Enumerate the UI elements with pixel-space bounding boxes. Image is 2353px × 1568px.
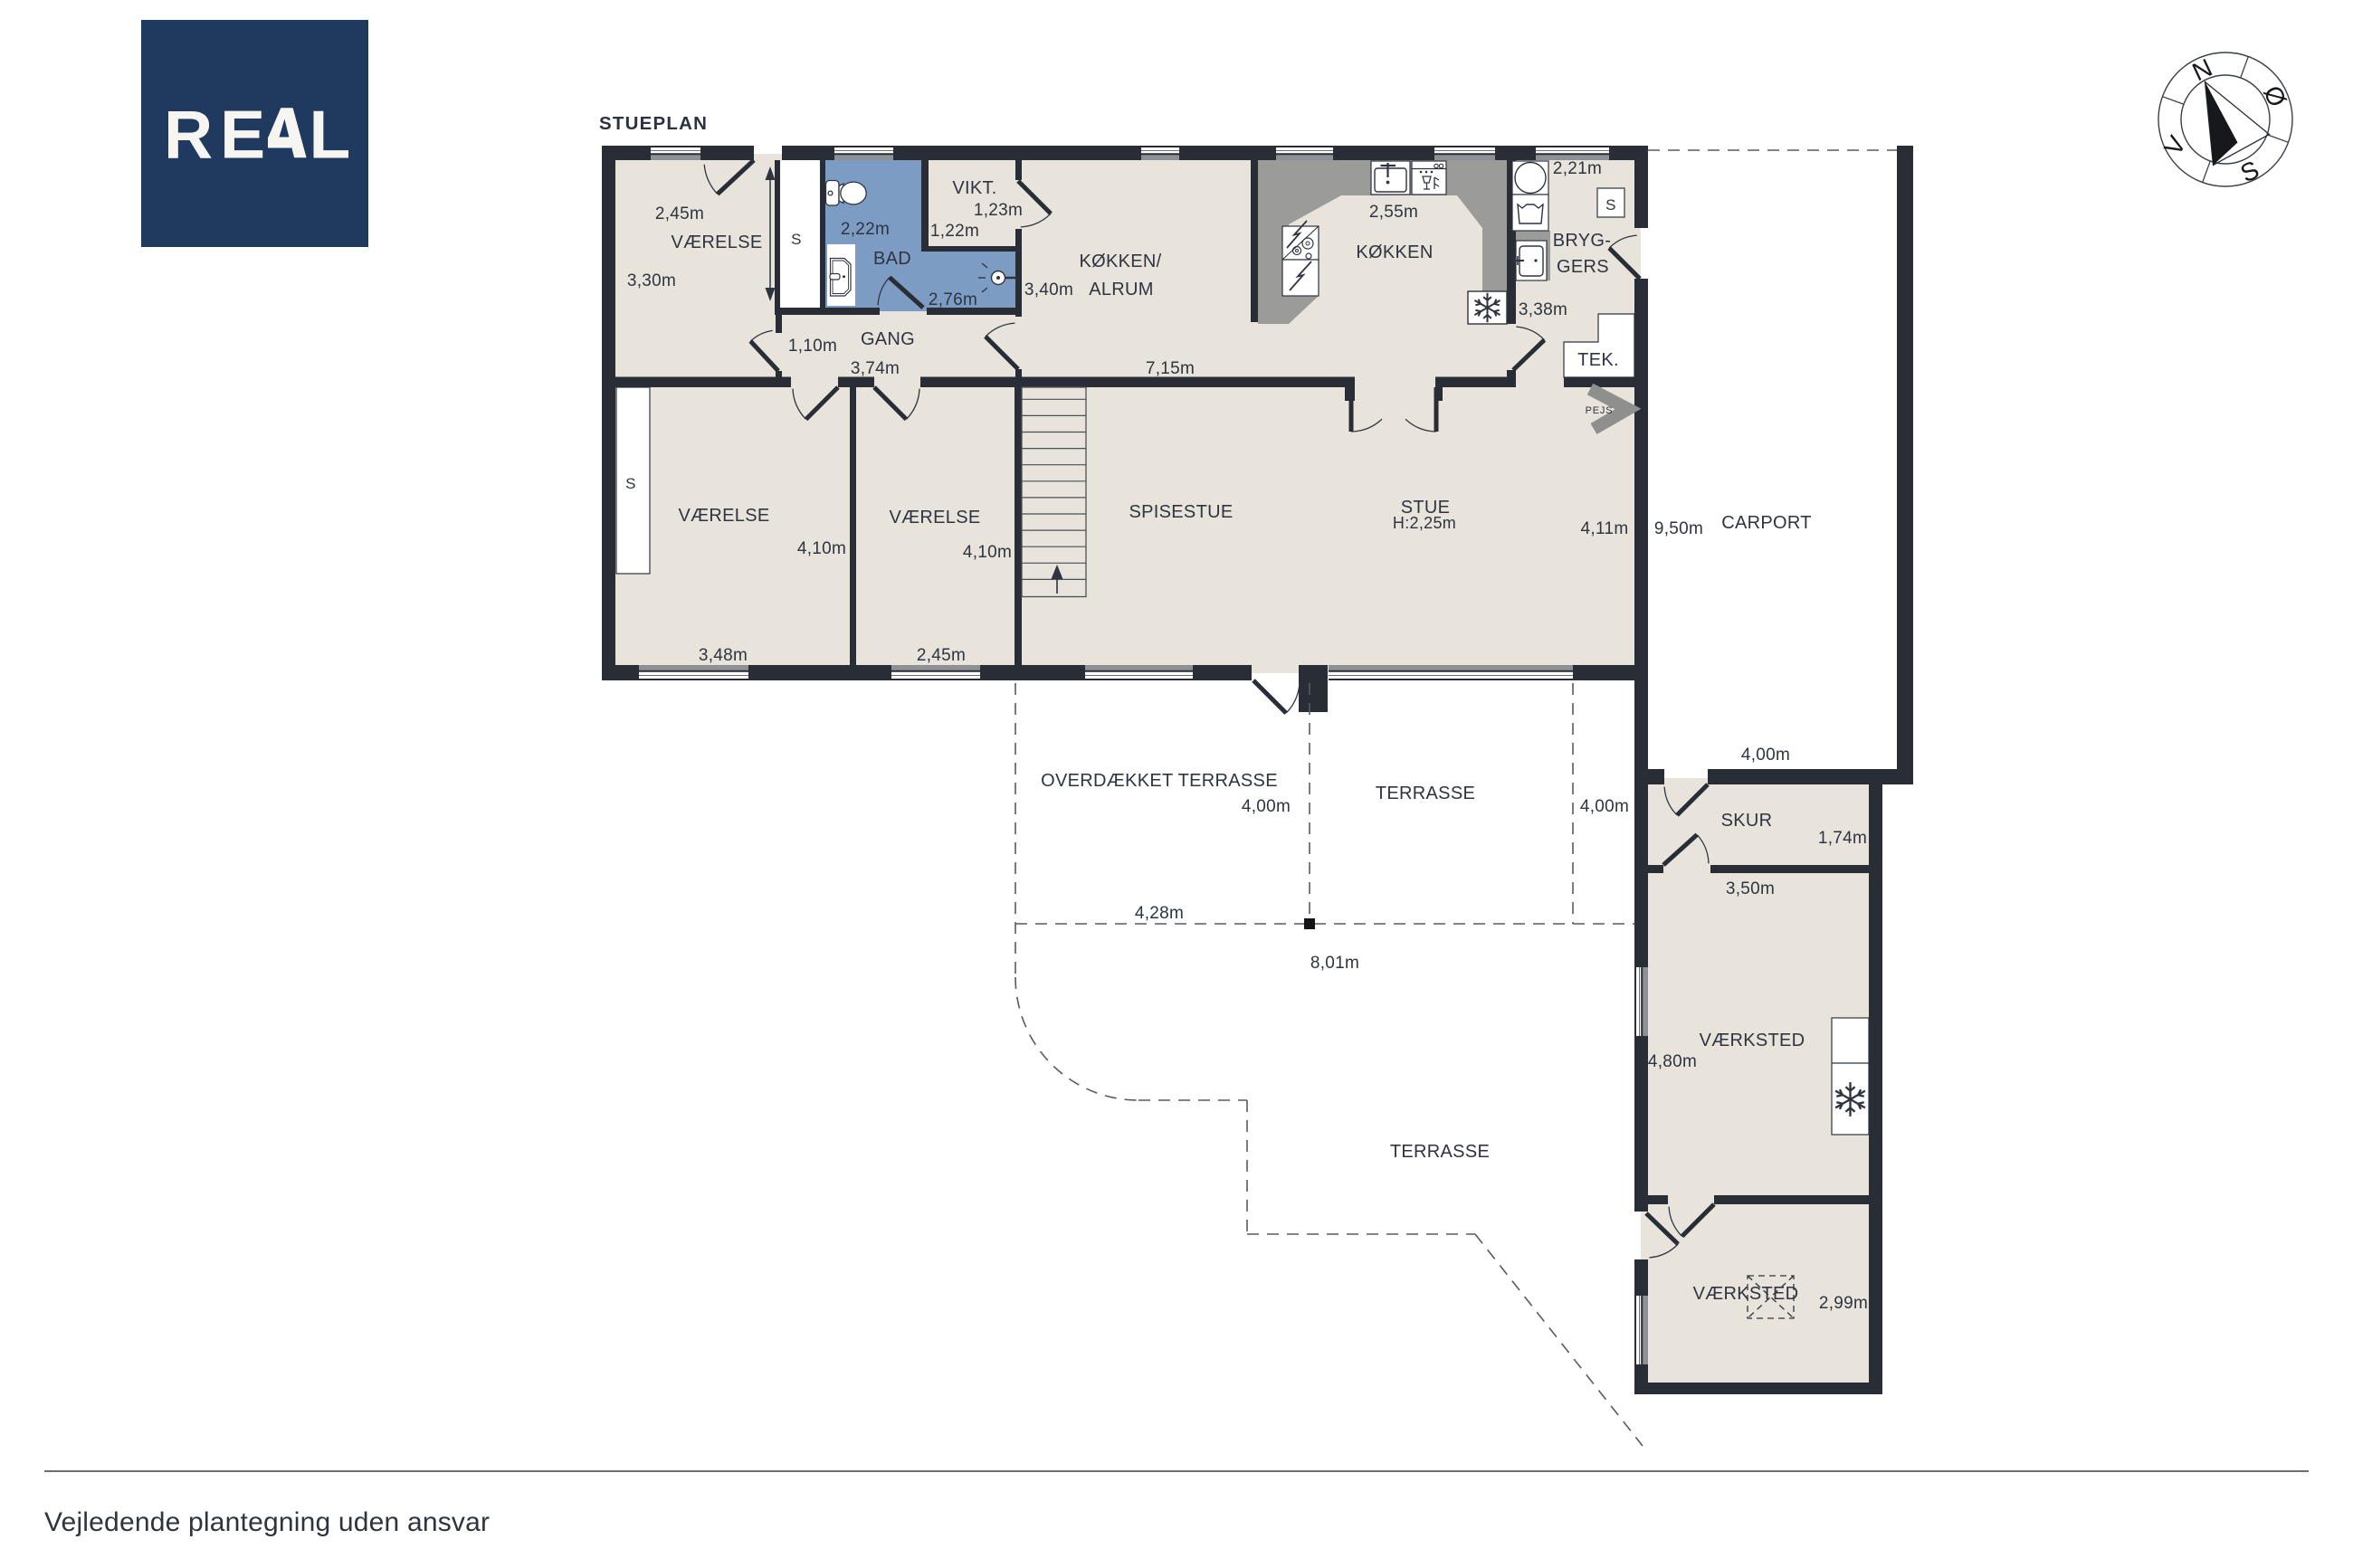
svg-text:KØKKEN/: KØKKEN/ <box>1079 252 1161 271</box>
svg-text:VÆRELSE: VÆRELSE <box>889 508 980 527</box>
svg-text:4,00m: 4,00m <box>1741 746 1790 765</box>
svg-text:4,10m: 4,10m <box>797 539 846 558</box>
svg-text:H:2,25m: H:2,25m <box>1393 514 1456 532</box>
svg-text:BAD: BAD <box>873 249 911 269</box>
svg-text:GERS: GERS <box>1557 257 1609 277</box>
svg-text:3,74m: 3,74m <box>851 359 900 378</box>
svg-text:VÆRKSTED: VÆRKSTED <box>1693 1284 1799 1304</box>
svg-text:TERRASSE: TERRASSE <box>1376 784 1475 803</box>
svg-text:4,28m: 4,28m <box>1135 904 1184 923</box>
svg-text:1,74m: 1,74m <box>1818 829 1867 848</box>
svg-text:L: L <box>310 97 351 173</box>
svg-text:SPISESTUE: SPISESTUE <box>1129 502 1234 522</box>
svg-text:KØKKEN: KØKKEN <box>1356 242 1433 262</box>
svg-text:CARPORT: CARPORT <box>1721 513 1812 533</box>
svg-text:STUEPLAN: STUEPLAN <box>599 113 708 134</box>
svg-text:TEK.: TEK. <box>1577 350 1619 370</box>
svg-text:2,22m: 2,22m <box>841 220 890 239</box>
svg-text:9,50m: 9,50m <box>1654 519 1703 538</box>
svg-text:1,22m: 1,22m <box>930 222 979 241</box>
svg-text:OVERDÆKKET TERRASSE: OVERDÆKKET TERRASSE <box>1041 771 1278 791</box>
svg-text:PEJS: PEJS <box>1586 405 1614 416</box>
svg-text:4,10m: 4,10m <box>963 543 1012 562</box>
svg-text:2,99m: 2,99m <box>1819 1294 1868 1313</box>
svg-text:VÆRKSTED: VÆRKSTED <box>1700 1031 1805 1050</box>
svg-text:3,38m: 3,38m <box>1519 300 1567 319</box>
svg-text:1,23m: 1,23m <box>974 201 1023 220</box>
svg-text:2,45m: 2,45m <box>655 204 704 223</box>
svg-text:2,21m: 2,21m <box>1553 159 1602 178</box>
svg-text:VIKT.: VIKT. <box>952 178 996 198</box>
svg-text:7,15m: 7,15m <box>1146 359 1195 378</box>
svg-text:3,30m: 3,30m <box>627 271 676 290</box>
svg-text:GANG: GANG <box>861 329 915 349</box>
svg-text:S: S <box>1605 196 1616 214</box>
svg-text:3,48m: 3,48m <box>699 646 748 665</box>
svg-text:2,45m: 2,45m <box>917 646 966 665</box>
svg-text:Vejledende plantegning uden an: Vejledende plantegning uden ansvar <box>44 1507 490 1537</box>
svg-text:8,01m: 8,01m <box>1310 954 1359 973</box>
svg-text:3,40m: 3,40m <box>1024 280 1073 299</box>
svg-text:ALRUM: ALRUM <box>1089 280 1154 299</box>
svg-text:3,50m: 3,50m <box>1726 879 1775 898</box>
svg-text:SKUR: SKUR <box>1721 811 1773 831</box>
svg-text:4,11m: 4,11m <box>1581 519 1629 538</box>
svg-text:4,80m: 4,80m <box>1648 1052 1697 1071</box>
svg-text:2,55m: 2,55m <box>1369 203 1418 222</box>
svg-text:RE: RE <box>164 97 272 173</box>
svg-text:S: S <box>791 231 802 248</box>
svg-text:2,76m: 2,76m <box>929 290 977 309</box>
svg-text:TERRASSE: TERRASSE <box>1390 1142 1490 1162</box>
svg-text:1,10m: 1,10m <box>788 337 837 356</box>
svg-text:4,00m: 4,00m <box>1580 797 1629 816</box>
svg-text:BRYG-: BRYG- <box>1553 231 1611 251</box>
svg-text:4,00m: 4,00m <box>1242 797 1291 816</box>
svg-text:VÆRELSE: VÆRELSE <box>671 233 762 252</box>
svg-text:S: S <box>625 475 636 492</box>
svg-text:VÆRELSE: VÆRELSE <box>678 506 769 526</box>
